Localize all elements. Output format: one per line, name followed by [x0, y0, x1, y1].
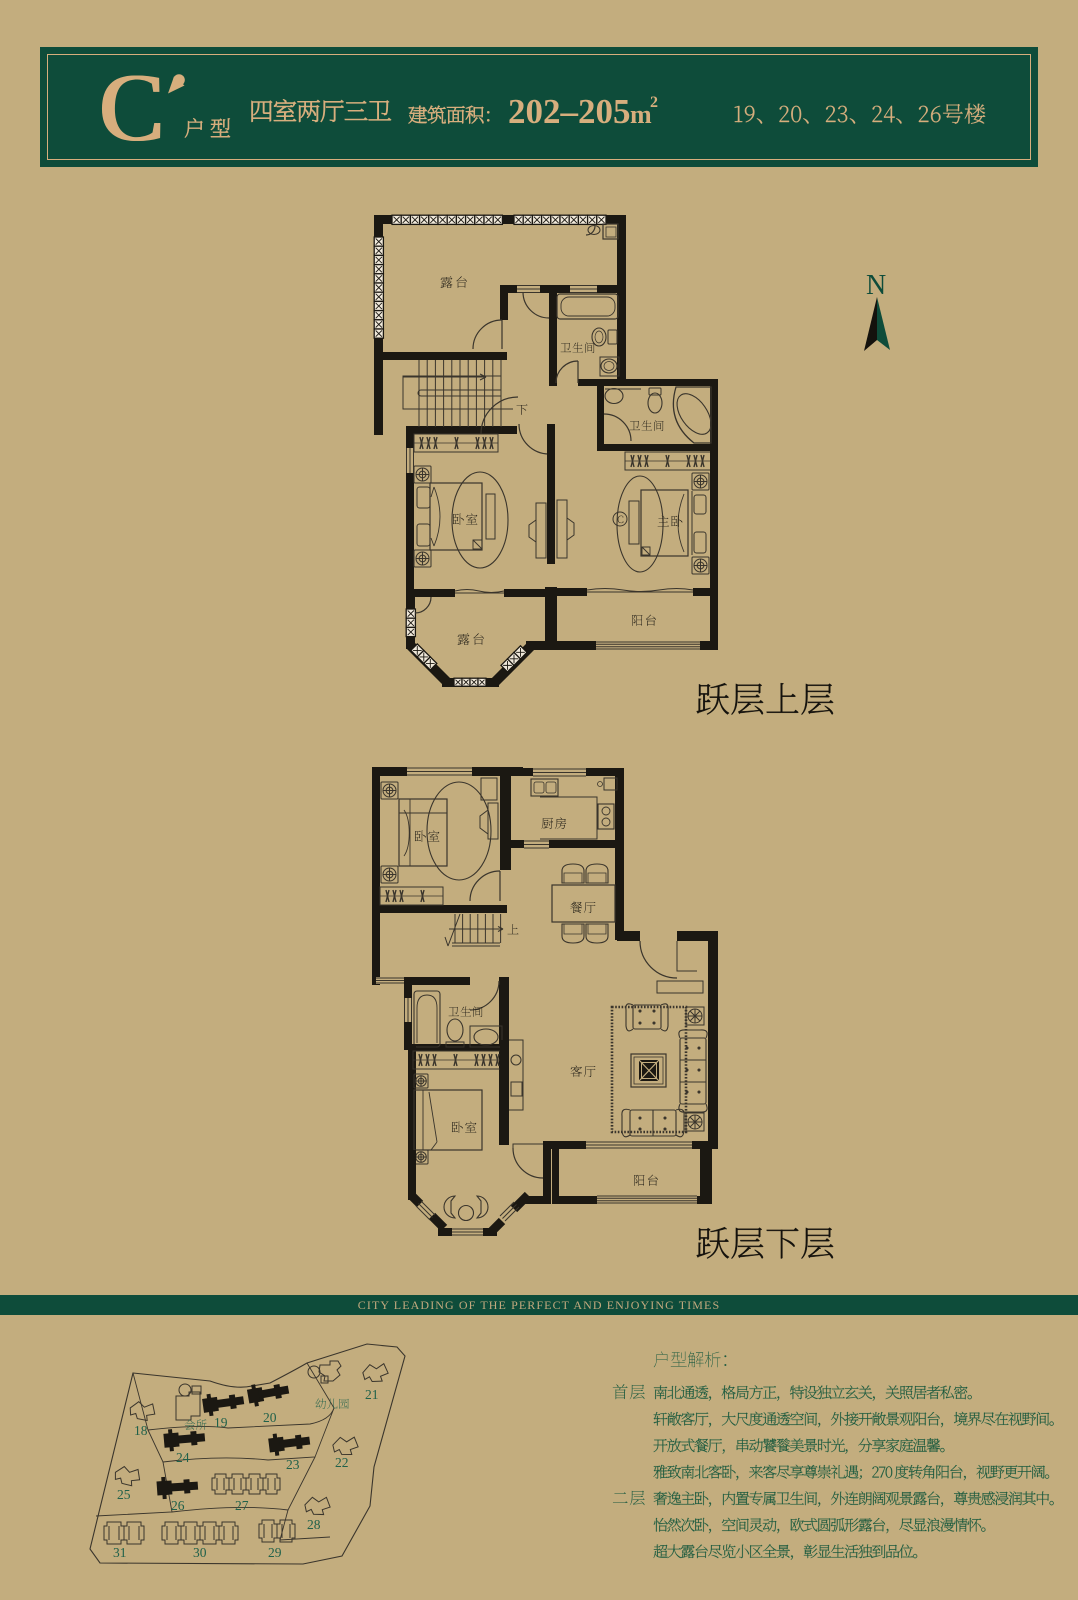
svg-text:C: C: [101, 54, 166, 160]
svg-text:N: N: [866, 270, 886, 301]
svg-text:29: 29: [268, 1545, 282, 1560]
svg-text:27: 27: [235, 1498, 249, 1513]
svg-text:28: 28: [307, 1517, 321, 1532]
svg-text:25: 25: [117, 1487, 131, 1502]
svg-text:22: 22: [335, 1455, 349, 1470]
svg-text:m: m: [630, 100, 652, 129]
svg-text:18: 18: [134, 1423, 148, 1438]
svg-text:20: 20: [263, 1410, 277, 1425]
svg-text:21: 21: [365, 1387, 379, 1402]
svg-text:30: 30: [193, 1545, 207, 1560]
svg-text:19: 19: [214, 1415, 228, 1430]
svg-text:26: 26: [171, 1498, 185, 1513]
svg-text:24: 24: [176, 1450, 190, 1465]
svg-text:2: 2: [650, 94, 658, 111]
svg-text:31: 31: [113, 1545, 127, 1560]
svg-text:23: 23: [286, 1457, 300, 1472]
svg-text:202–205: 202–205: [508, 92, 631, 130]
